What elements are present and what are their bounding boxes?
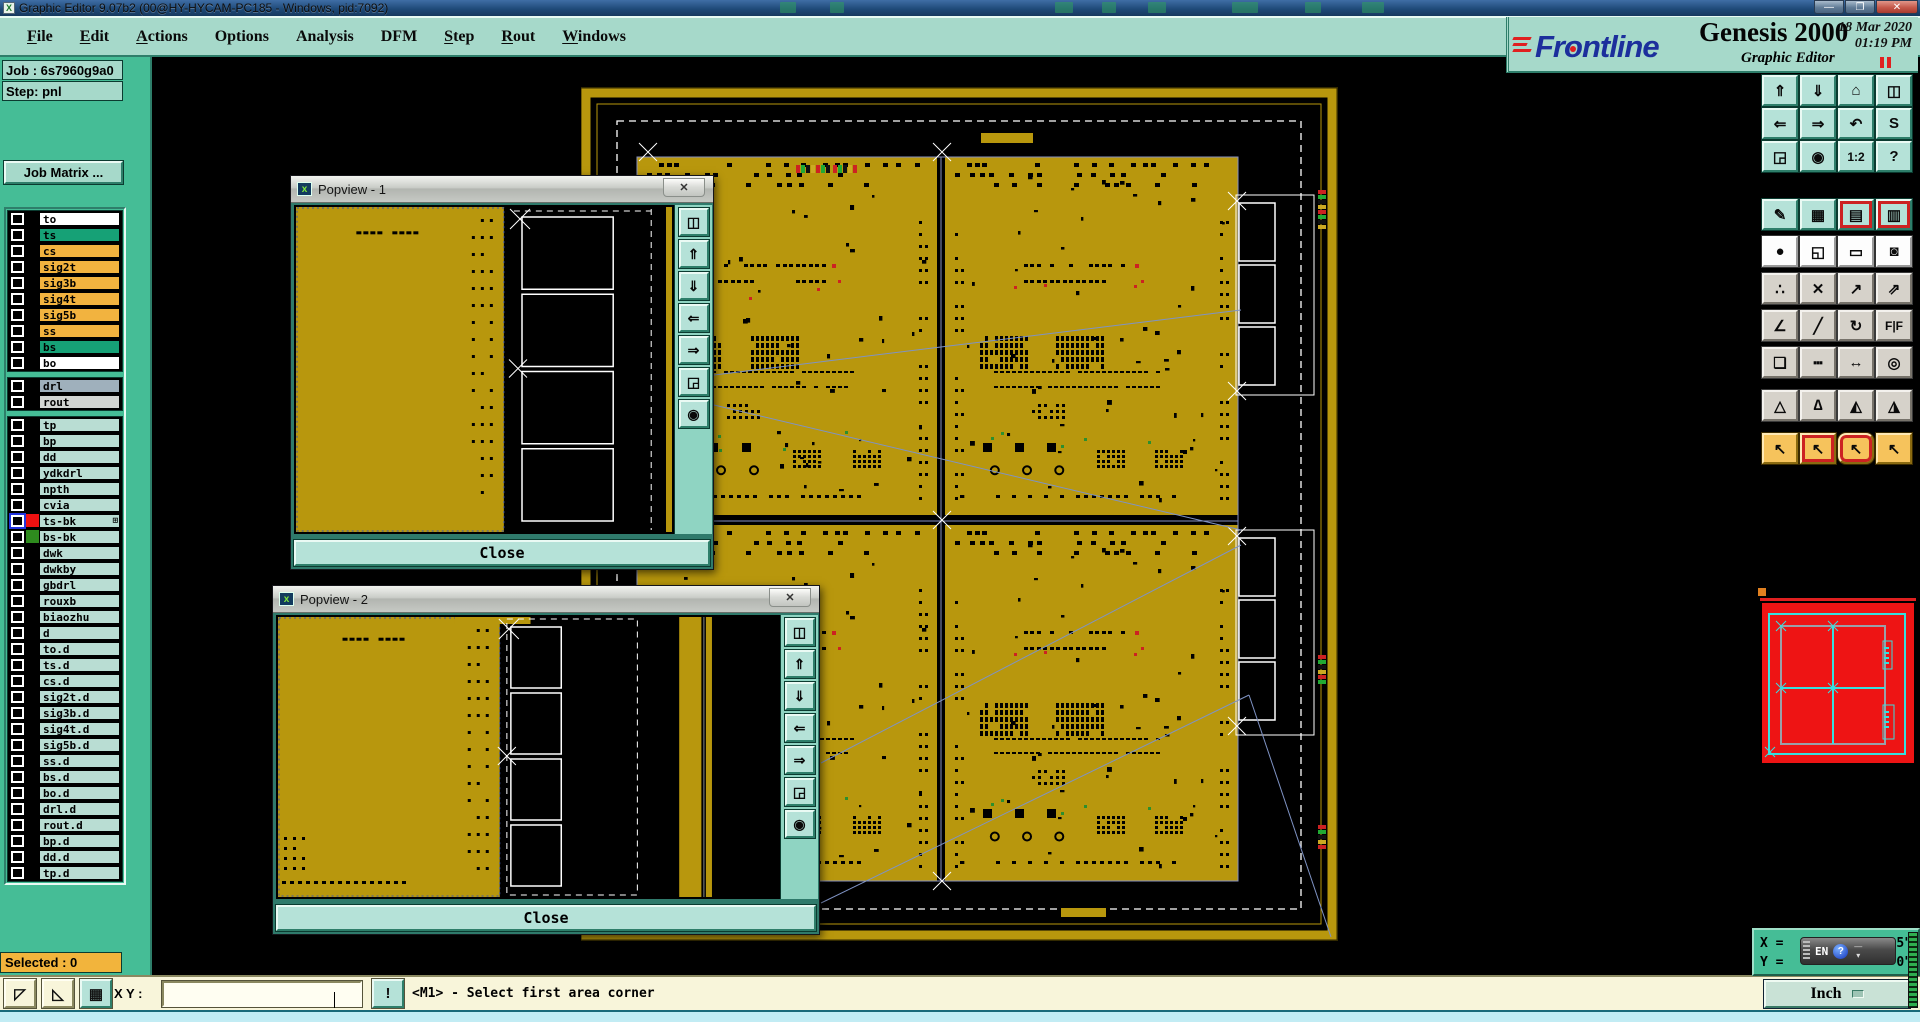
layer-color-swatch	[26, 866, 39, 879]
layer-color-swatch	[26, 658, 39, 671]
menu-actions[interactable]: Actions	[136, 28, 188, 46]
layer-checkbox[interactable]	[11, 483, 24, 495]
zoom-out-button[interactable]: ◲	[679, 368, 709, 396]
layer-display-a-button[interactable]: ▤	[1838, 199, 1874, 230]
layer-name-label: d	[39, 626, 120, 640]
right-toolbar: ⇑⇓⌂◫⇐⇒↶S◲◉1:2?✎▦▤▥●◱▭◙∴✕↗⇗∠╱↻F|F❏┅↔◎△∆◭◮…	[1758, 57, 1920, 975]
units-value: Inch	[1810, 985, 1841, 1003]
arc-fillet-c-button[interactable]: ◭	[1838, 390, 1874, 421]
layer-name-label: bp.d	[39, 834, 120, 848]
background-task-icon	[1305, 2, 1321, 13]
select-mode-single-button[interactable]: ↖	[1762, 433, 1798, 464]
layer-row-bp[interactable]: bp	[8, 433, 122, 449]
zoom-in-button[interactable]: ◉	[679, 400, 709, 428]
overview-top-strip	[1758, 588, 1766, 596]
layer-color-swatch	[26, 738, 39, 751]
select-mode-poly-button[interactable]: ↖	[1838, 433, 1874, 464]
popview-2-toolbar: ◫⇑⇓⇐⇒◲◉	[780, 615, 818, 899]
layer-checkbox[interactable]	[11, 771, 24, 783]
pan-down-button[interactable]: ⇓	[679, 272, 709, 300]
layer-row-dd[interactable]: dd	[8, 449, 122, 465]
scroll-indicator-strip[interactable]	[1908, 932, 1918, 1008]
background-task-icon	[1102, 2, 1116, 13]
minimize-button[interactable]: —	[1814, 0, 1844, 14]
layer-row-drl.d[interactable]: drl.d	[8, 801, 122, 817]
pan-down-button[interactable]: ⇓	[785, 682, 815, 710]
layer-color-swatch	[26, 395, 39, 408]
step-label: Step: pnl	[2, 81, 123, 101]
popview-2-canvas[interactable]	[276, 615, 780, 899]
layer-row-ts.d[interactable]: ts.d	[8, 657, 122, 673]
layer-color-swatch	[26, 562, 39, 575]
pause-indicator-icon[interactable]	[1880, 57, 1892, 68]
arc-fillet-b-button[interactable]: ∆	[1800, 390, 1836, 421]
copy-feature-button[interactable]: ⇗	[1876, 273, 1912, 304]
copy-to-layer-button[interactable]: ❏	[1762, 347, 1798, 378]
layer-checkbox[interactable]	[11, 515, 24, 527]
layer-name-label: drl.d	[39, 802, 120, 816]
select-pad-button[interactable]: ●	[1762, 236, 1798, 267]
layer-name-label: bo	[39, 356, 120, 370]
layer-checkbox[interactable]	[11, 835, 24, 847]
layer-checkbox[interactable]	[11, 723, 24, 735]
layer-color-swatch	[26, 530, 39, 543]
measure-angle-button[interactable]: ∠	[1762, 310, 1798, 341]
pan-left-button[interactable]: ⇐	[1762, 108, 1798, 139]
layer-row-tp[interactable]: tp	[8, 417, 122, 433]
layer-row-to[interactable]: to	[8, 211, 122, 227]
popview-1-toolbar: ◫⇑⇓⇐⇒◲◉	[674, 205, 712, 534]
overview-map[interactable]	[1760, 601, 1916, 770]
restore-button[interactable]: ❐	[1845, 0, 1875, 14]
layer-group-2: drlrout	[7, 377, 123, 411]
select-mode-frame-button[interactable]: ↖	[1800, 433, 1836, 464]
pan-left-button[interactable]: ⇐	[785, 714, 815, 742]
layer-name-label: dwk	[39, 546, 120, 560]
layer-color-swatch	[26, 450, 39, 463]
pan-right-button[interactable]: ⇒	[1800, 108, 1836, 139]
layer-row-gbdrl[interactable]: gbdrl	[8, 577, 122, 593]
layer-checkbox[interactable]	[11, 213, 24, 225]
window-controls: —❐✕	[1813, 0, 1918, 14]
application-window: X Graphic Editor 9.07b2 (00@HY-HYCAM-PC1…	[0, 0, 1920, 1022]
units-dropdown[interactable]: Inch	[1764, 980, 1910, 1008]
layer-name-label: ydkdrl	[39, 466, 120, 480]
editor-setup-button[interactable]: ✎	[1762, 199, 1798, 230]
layer-color-swatch	[26, 498, 39, 511]
layer-checkbox[interactable]	[11, 451, 24, 463]
pan-up-button[interactable]: ⇑	[785, 650, 815, 678]
popview-2-title-bar[interactable]: x Popview - 2 ✕	[273, 586, 819, 613]
layer-row-bp.d[interactable]: bp.d	[8, 833, 122, 849]
layer-color-swatch	[26, 340, 39, 353]
date-text: 18 Mar 2020	[1838, 20, 1912, 35]
sidebar: Job : 6s7960g9a0 Step: pnl Job Matrix ..…	[0, 57, 152, 975]
job-label: Job : 6s7960g9a0	[2, 60, 123, 80]
layer-checkbox[interactable]	[11, 277, 24, 289]
zoom-window-xy-button[interactable]: ◫	[1876, 75, 1912, 106]
layer-checkbox[interactable]	[11, 867, 24, 879]
layer-name-label: to	[39, 212, 120, 226]
layer-color-swatch	[26, 610, 39, 623]
popview-app-icon: x	[297, 182, 312, 196]
layer-checkbox[interactable]	[11, 851, 24, 863]
popview-2-title: Popview - 2	[300, 592, 368, 607]
layer-checkbox[interactable]	[11, 675, 24, 687]
ime-options-arrow-icon[interactable]: ▾	[1856, 951, 1860, 960]
layer-color-swatch	[26, 706, 39, 719]
layer-row-sig5b[interactable]: sig5b	[8, 307, 122, 323]
layer-row-bo[interactable]: bo	[8, 355, 122, 371]
layer-checkbox[interactable]	[11, 531, 24, 543]
layer-row-sig4t[interactable]: sig4t	[8, 291, 122, 307]
layer-name-label: to.d	[39, 642, 120, 656]
layer-name-label: sig2t	[39, 260, 120, 274]
layer-checkbox[interactable]	[11, 341, 24, 353]
layer-checkbox[interactable]	[11, 755, 24, 767]
layer-checkbox[interactable]	[11, 261, 24, 273]
zoom-in-button[interactable]: ◉	[1800, 141, 1836, 172]
layer-checkbox[interactable]	[11, 611, 24, 623]
layer-color-swatch	[26, 786, 39, 799]
layer-row-bs.d[interactable]: bs.d	[8, 769, 122, 785]
layer-row-dwk[interactable]: dwk	[8, 545, 122, 561]
layer-name-label: ts	[39, 228, 120, 242]
frontline-logo: Frontline	[1535, 29, 1659, 65]
popview-2-window[interactable]: x Popview - 2 ✕ ◫⇑⇓⇐⇒◲◉ Close	[272, 585, 820, 935]
previous-view-button[interactable]: ↶	[1838, 108, 1874, 139]
layer-row-npth[interactable]: npth	[8, 481, 122, 497]
time-text: 01:19 PM	[1855, 36, 1912, 51]
layer-color-swatch	[26, 818, 39, 831]
background-task-icon	[1362, 2, 1384, 13]
layer-name-label: gbdrl	[39, 578, 120, 592]
layer-name-label: sig3b.d	[39, 706, 120, 720]
layer-color-swatch	[26, 674, 39, 687]
popview-app-icon: x	[279, 592, 294, 606]
layer-name-label: bs.d	[39, 770, 120, 784]
popview-1-canvas[interactable]	[294, 205, 674, 534]
pan-left-button[interactable]: ⇐	[679, 304, 709, 332]
dropdown-icon	[1852, 990, 1864, 998]
move-feature-button[interactable]: ↗	[1838, 273, 1874, 304]
layer-checkbox[interactable]	[11, 309, 24, 321]
layer-name-label: cs.d	[39, 674, 120, 688]
background-task-icon	[1232, 2, 1258, 13]
layer-checkbox[interactable]	[11, 396, 24, 408]
layer-color-swatch	[26, 850, 39, 863]
layer-name-label: sig5b	[39, 308, 120, 322]
query-feature-button[interactable]: ?	[1876, 141, 1912, 172]
layer-color-swatch	[26, 482, 39, 495]
layer-name-label: sig3b	[39, 276, 120, 290]
layer-checkbox[interactable]	[11, 325, 24, 337]
layer-checkbox[interactable]	[11, 380, 24, 392]
layer-checkbox[interactable]	[11, 659, 24, 671]
home-view-button[interactable]: ⌂	[1838, 75, 1874, 106]
layer-color-swatch	[26, 244, 39, 257]
slant-line-button[interactable]: ╱	[1800, 310, 1836, 341]
snap-grid-button[interactable]: ▦	[1800, 199, 1836, 230]
layer-checkbox[interactable]	[11, 803, 24, 815]
overview-panel[interactable]	[1760, 598, 1916, 770]
layer-color-swatch	[26, 292, 39, 305]
layer-color-swatch	[26, 308, 39, 321]
layer-name-label: sig5b.d	[39, 738, 120, 752]
layer-checkbox[interactable]	[11, 547, 24, 559]
text-caret	[334, 992, 335, 1008]
background-task-icon	[780, 2, 796, 13]
net-endpoints-button[interactable]: ∴	[1762, 273, 1798, 304]
layer-row-sig3b[interactable]: sig3b	[8, 275, 122, 291]
layer-name-label: bp	[39, 434, 120, 448]
pan-right-button[interactable]: ⇒	[679, 336, 709, 364]
layer-name-label: bs	[39, 340, 120, 354]
select-area-pad-button[interactable]: ◙	[1876, 236, 1912, 267]
layer-name-label: tp.d	[39, 866, 120, 880]
layer-row-bo.d[interactable]: bo.d	[8, 785, 122, 801]
window-title-bar[interactable]: X Graphic Editor 9.07b2 (00@HY-HYCAM-PC1…	[0, 0, 1920, 16]
xy-label: X Y :	[114, 986, 142, 1001]
layer-name-label: tp	[39, 418, 120, 432]
layer-row-tp.d[interactable]: tp.d	[8, 865, 122, 881]
menu-items: FileEditActionsOptionsAnalysisDFMStepRou…	[0, 28, 626, 46]
window-title: Graphic Editor 9.07b2 (00@HY-HYCAM-PC185…	[19, 1, 388, 15]
zoom-in-button[interactable]: ◉	[785, 810, 815, 838]
datetime-display: 18 Mar 2020 01:19 PM	[1838, 20, 1912, 52]
ime-grip-handle[interactable]	[1803, 941, 1810, 961]
ime-language-bar[interactable]: EN ? — ▾	[1800, 937, 1896, 965]
layer-color-swatch	[26, 356, 39, 369]
layer-checkbox[interactable]	[11, 627, 24, 639]
selected-count-badge: Selected : 0	[0, 952, 122, 973]
layer-row-sig5b.d[interactable]: sig5b.d	[8, 737, 122, 753]
product-name: Genesis 2000	[1699, 17, 1848, 48]
layer-color-swatch	[26, 546, 39, 559]
coordinate-input[interactable]	[162, 981, 362, 1007]
layer-checkbox[interactable]	[11, 819, 24, 831]
layer-color-swatch	[26, 722, 39, 735]
layer-row-ts[interactable]: ts	[8, 227, 122, 243]
layer-color-swatch	[26, 754, 39, 767]
layer-row-bs-bk[interactable]: bs-bk	[8, 529, 122, 545]
popview-2-close-icon[interactable]: ✕	[769, 588, 811, 607]
layer-row-sig2t[interactable]: sig2t	[8, 259, 122, 275]
profile-corner-a-button[interactable]: ◸	[4, 979, 36, 1008]
popview-1-title-bar[interactable]: x Popview - 1 ✕	[291, 176, 713, 203]
layer-name-label: biaozhu	[39, 610, 120, 624]
menu-edit[interactable]: Edit	[80, 28, 109, 46]
layer-name-label: npth	[39, 482, 120, 496]
layer-row-cs.d[interactable]: cs.d	[8, 673, 122, 689]
layer-row-rout.d[interactable]: rout.d	[8, 817, 122, 833]
layer-row-ss[interactable]: ss	[8, 323, 122, 339]
pan-down-button[interactable]: ⇓	[1800, 75, 1836, 106]
background-task-icon	[1148, 2, 1166, 13]
popview-1-window[interactable]: x Popview - 1 ✕ ◫⇑⇓⇐⇒◲◉ Close	[290, 175, 714, 570]
windows-taskbar-strip[interactable]	[0, 1010, 1920, 1022]
rotate-feature-button[interactable]: ↻	[1838, 310, 1874, 341]
layer-checkbox[interactable]	[11, 643, 24, 655]
layer-row-ss.d[interactable]: ss.d	[8, 753, 122, 769]
layer-row-rout[interactable]: rout	[8, 394, 122, 410]
surface-tool-button[interactable]: ◎	[1876, 347, 1912, 378]
popview-1-title: Popview - 1	[318, 182, 386, 197]
mirror-feature-button[interactable]: F|F	[1876, 310, 1912, 341]
layer-row-drl[interactable]: drl	[8, 378, 122, 394]
menu-file[interactable]: File	[27, 28, 53, 46]
pan-up-button[interactable]: ⇑	[1762, 75, 1798, 106]
popview-2-close-button[interactable]: Close	[276, 905, 816, 931]
popview-1-close-button[interactable]: Close	[294, 540, 710, 566]
layer-name-label: ss	[39, 324, 120, 338]
close-button[interactable]: ✕	[1876, 0, 1918, 14]
layer-color-swatch	[26, 802, 39, 815]
layer-row-ts-bk[interactable]: ts-bk⊞	[8, 513, 122, 529]
layer-row-to.d[interactable]: to.d	[8, 641, 122, 657]
layer-row-sig2t.d[interactable]: sig2t.d	[8, 689, 122, 705]
layer-row-ydkdrl[interactable]: ydkdrl	[8, 465, 122, 481]
pan-right-button[interactable]: ⇒	[785, 746, 815, 774]
measure-ruler-button[interactable]: ▭	[1838, 236, 1874, 267]
layer-context-icon[interactable]: ⊞	[113, 515, 118, 528]
layer-row-bs[interactable]: bs	[8, 339, 122, 355]
menu-rout[interactable]: Rout	[501, 28, 535, 46]
layer-checkbox[interactable]	[11, 419, 24, 431]
layer-checkbox[interactable]	[11, 595, 24, 607]
layer-checkbox[interactable]	[11, 467, 24, 479]
layer-checkbox[interactable]	[11, 691, 24, 703]
layer-name-label: cs	[39, 244, 120, 258]
layer-row-cvia[interactable]: cvia	[8, 497, 122, 513]
layer-name-label: sig2t.d	[39, 690, 120, 704]
layer-row-dwkby[interactable]: dwkby	[8, 561, 122, 577]
frontline-speedlines-icon	[1513, 37, 1533, 55]
menu-step[interactable]: Step	[444, 28, 474, 46]
layer-color-swatch	[26, 276, 39, 289]
profile-corner-b-button[interactable]: ◺	[42, 979, 74, 1008]
detach-view-button[interactable]: ◫	[785, 618, 815, 646]
layer-name-label: bs-bk	[39, 530, 120, 544]
break-line-button[interactable]: ┅	[1800, 347, 1836, 378]
layer-name-label: sig4t	[39, 292, 120, 306]
repeat-view-button[interactable]: S	[1876, 108, 1912, 139]
layer-checkbox[interactable]	[11, 563, 24, 575]
layer-color-swatch	[26, 594, 39, 607]
layer-name-label: dd.d	[39, 850, 120, 864]
y-readout-label: Y =	[1760, 953, 1783, 972]
arc-fillet-a-button[interactable]: △	[1762, 390, 1798, 421]
status-bar: ◸◺▦ X Y : ! <M1> - Select first area cor…	[0, 975, 1920, 1010]
layer-checkbox[interactable]	[11, 707, 24, 719]
arc-fillet-d-button[interactable]: ◮	[1876, 390, 1912, 421]
layer-checkbox[interactable]	[11, 435, 24, 447]
layer-row-dd.d[interactable]: dd.d	[8, 849, 122, 865]
layer-color-swatch	[26, 418, 39, 431]
job-matrix-button[interactable]: Job Matrix ...	[4, 161, 123, 184]
app-icon: X	[3, 2, 15, 14]
layer-row-sig3b.d[interactable]: sig3b.d	[8, 705, 122, 721]
menu-windows[interactable]: Windows	[562, 28, 626, 46]
layer-checkbox[interactable]	[11, 357, 24, 369]
background-task-icon	[1055, 2, 1073, 13]
popview-1-close-icon[interactable]: ✕	[663, 178, 705, 197]
ime-help-icon[interactable]: ?	[1833, 944, 1848, 959]
layer-color-swatch	[26, 324, 39, 337]
zoom-out-button[interactable]: ◲	[785, 778, 815, 806]
layer-name-label: ss.d	[39, 754, 120, 768]
zoom-out-button[interactable]: ◲	[1762, 141, 1798, 172]
x-readout-label: X =	[1760, 934, 1783, 953]
layer-checkbox[interactable]	[11, 229, 24, 241]
ime-minimize-icon[interactable]: —	[1854, 942, 1862, 951]
layer-row-rouxb[interactable]: rouxb	[8, 593, 122, 609]
layer-checkbox[interactable]	[11, 787, 24, 799]
layer-checkbox[interactable]	[11, 499, 24, 511]
layer-name-label: dwkby	[39, 562, 120, 576]
layer-row-biaozhu[interactable]: biaozhu	[8, 609, 122, 625]
grid-snap-toggle-button[interactable]: ▦	[80, 979, 112, 1008]
layer-color-swatch	[26, 642, 39, 655]
layer-row-sig4t.d[interactable]: sig4t.d	[8, 721, 122, 737]
layer-name-label: dd	[39, 450, 120, 464]
layer-name-label: rout	[39, 395, 120, 409]
layer-name-label: drl	[39, 379, 120, 393]
layer-row-d[interactable]: d	[8, 625, 122, 641]
layer-display-b-button[interactable]: ▥	[1876, 199, 1912, 230]
layer-group-1: totscssig2tsig3bsig4tsig5bssbsbo	[7, 210, 123, 372]
prompt-message: <M1> - Select first area corner	[412, 986, 655, 1001]
pan-up-button[interactable]: ⇑	[679, 240, 709, 268]
menu-analysis[interactable]: Analysis	[296, 28, 354, 46]
layer-color-swatch	[26, 212, 39, 225]
resize-feature-button[interactable]: ↔	[1838, 347, 1874, 378]
layer-checkbox[interactable]	[11, 579, 24, 591]
layer-row-cs[interactable]: cs	[8, 243, 122, 259]
layer-name-label: bo.d	[39, 786, 120, 800]
layer-name-label: ts.d	[39, 658, 120, 672]
layer-color-swatch	[26, 514, 39, 527]
layer-list: totscssig2tsig3bsig4tsig5bssbsbodrlroutt…	[4, 207, 126, 885]
menu-dfm[interactable]: DFM	[381, 28, 417, 46]
select-mode-net-button[interactable]: ↖	[1876, 433, 1912, 464]
background-task-icon	[830, 2, 844, 13]
unselect-all-button[interactable]: ✕	[1800, 273, 1836, 304]
layer-name-label: sig4t.d	[39, 722, 120, 736]
layer-color-swatch	[26, 466, 39, 479]
layer-name-label: rout.d	[39, 818, 120, 832]
layer-checkbox[interactable]	[11, 293, 24, 305]
layer-color-swatch	[26, 434, 39, 447]
scale-1-2-button[interactable]: 1:2	[1838, 141, 1874, 172]
menu-options[interactable]: Options	[215, 28, 269, 46]
layer-name-label: ts-bk⊞	[39, 514, 120, 528]
product-subtitle: Graphic Editor	[1741, 50, 1835, 67]
branding-panel: Frontline Genesis 2000 Graphic Editor 18…	[1506, 17, 1918, 73]
ime-language-label[interactable]: EN	[1815, 945, 1828, 958]
layer-name-label: cvia	[39, 498, 120, 512]
layer-color-swatch	[26, 690, 39, 703]
layer-color-swatch	[26, 626, 39, 639]
layer-checkbox[interactable]	[11, 739, 24, 751]
highlight-net-button[interactable]: ◱	[1800, 236, 1836, 267]
command-bang-button[interactable]: !	[372, 979, 404, 1008]
layer-color-swatch	[26, 834, 39, 847]
layer-color-swatch	[26, 379, 39, 392]
layer-color-swatch	[26, 228, 39, 241]
layer-checkbox[interactable]	[11, 245, 24, 257]
detach-view-button[interactable]: ◫	[679, 208, 709, 236]
